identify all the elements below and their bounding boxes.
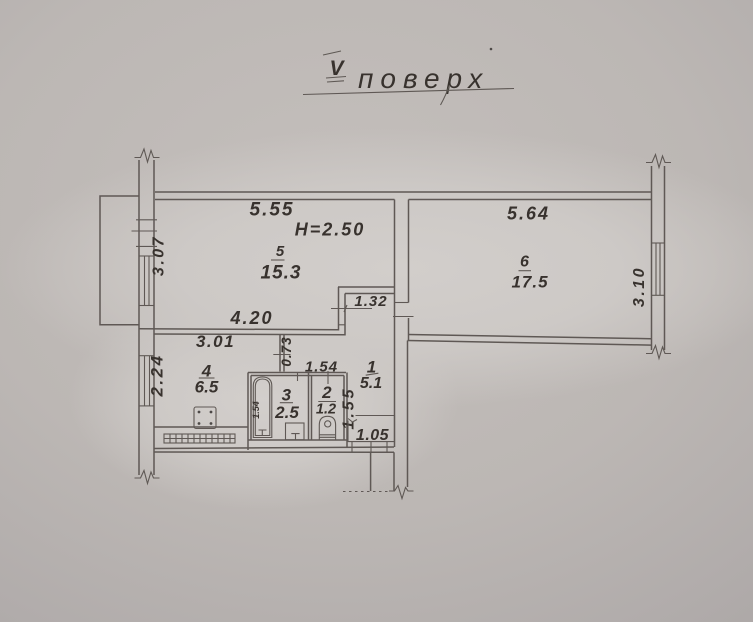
svg-text:2.24: 2.24	[148, 353, 167, 397]
svg-text:1.55: 1.55	[341, 386, 358, 429]
svg-text:6.5: 6.5	[195, 378, 219, 397]
svg-text:3.07: 3.07	[151, 235, 168, 276]
svg-text:2.5: 2.5	[274, 403, 299, 422]
svg-text:5.1: 5.1	[360, 375, 382, 392]
svg-text:17.5: 17.5	[511, 273, 548, 292]
svg-text:2: 2	[321, 383, 332, 402]
svg-text:1.32: 1.32	[354, 293, 387, 310]
svg-text:15.3: 15.3	[261, 263, 302, 284]
svg-text:1.54: 1.54	[305, 359, 338, 376]
svg-text:5.55: 5.55	[250, 200, 295, 221]
svg-text:1.05: 1.05	[356, 427, 390, 444]
svg-text:4.20: 4.20	[229, 308, 273, 328]
svg-text:6: 6	[520, 254, 529, 271]
svg-text:3.10: 3.10	[631, 266, 648, 307]
svg-text:1.54: 1.54	[251, 401, 261, 419]
svg-text:3: 3	[282, 386, 292, 405]
svg-text:H=2.50: H=2.50	[295, 220, 366, 240]
svg-text:0.73: 0.73	[279, 336, 294, 366]
svg-text:1.2: 1.2	[316, 402, 336, 418]
svg-text:5: 5	[276, 243, 285, 260]
svg-text:5.64: 5.64	[507, 204, 550, 224]
svg-text:3.01: 3.01	[196, 332, 235, 351]
